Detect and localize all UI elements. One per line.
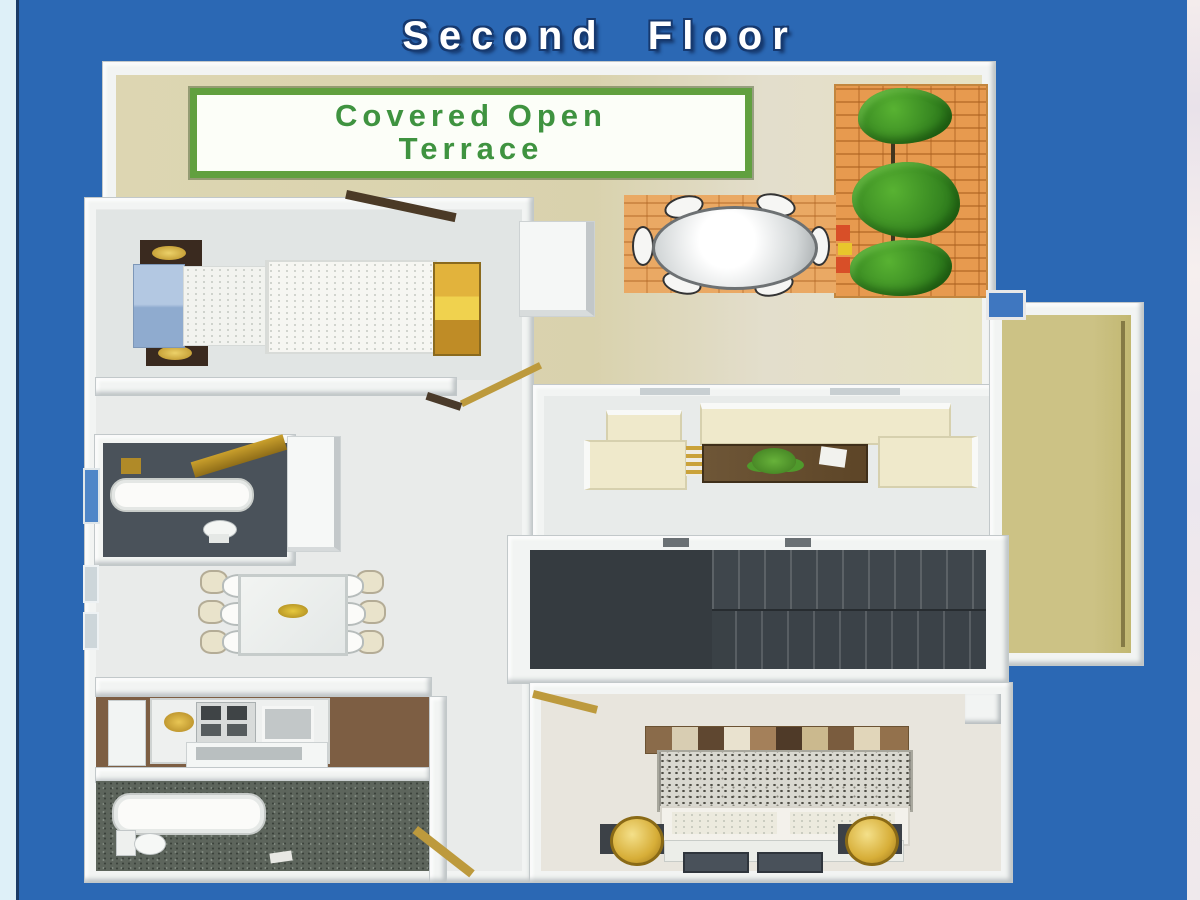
sign-line-1: Covered Open bbox=[335, 100, 607, 133]
lamp-icon bbox=[845, 816, 899, 866]
closet-cabinet bbox=[520, 222, 594, 316]
stairs-upper-flight bbox=[712, 550, 986, 610]
kitchen-north-wall bbox=[96, 678, 431, 696]
sign-line-2: Terrace bbox=[399, 133, 544, 166]
window bbox=[83, 468, 100, 524]
gold-pan bbox=[164, 712, 194, 732]
stairs-lower-flight bbox=[735, 610, 986, 670]
window bbox=[986, 290, 1026, 320]
tree-icon bbox=[850, 240, 952, 296]
footboard-slot bbox=[683, 852, 749, 873]
flight-divider bbox=[712, 609, 986, 611]
armchair bbox=[878, 436, 978, 488]
planter-red-block bbox=[836, 257, 850, 273]
corner-column bbox=[965, 694, 1001, 724]
bathtub bbox=[110, 478, 254, 512]
window bbox=[83, 612, 99, 650]
balcony bbox=[990, 303, 1143, 665]
table-centerpiece bbox=[278, 604, 308, 618]
window bbox=[83, 565, 99, 603]
tall-cabinet bbox=[288, 437, 340, 551]
bed-2-blanket bbox=[657, 750, 913, 812]
bathroom-2-divider-wall bbox=[96, 768, 431, 782]
outdoor-chair bbox=[632, 226, 654, 266]
vanity-corner bbox=[121, 458, 141, 474]
sink bbox=[262, 706, 314, 742]
burner-icon bbox=[227, 706, 247, 720]
planter-red-block bbox=[836, 225, 850, 241]
stairwell-pit bbox=[530, 550, 986, 669]
toilet-tank bbox=[116, 830, 136, 856]
bedroom-1-south-wall bbox=[96, 378, 456, 395]
lamp-icon bbox=[610, 816, 664, 866]
wall-slit bbox=[663, 538, 689, 547]
toilet bbox=[134, 833, 166, 855]
toilet-tank bbox=[209, 534, 229, 543]
burner-icon bbox=[201, 706, 221, 720]
counter-inset bbox=[196, 747, 302, 760]
bed-1-bench-wardrobe bbox=[433, 262, 481, 356]
bed-1-pillows bbox=[183, 266, 267, 346]
window-slit bbox=[830, 388, 900, 395]
floor-plan: Covered Open Terrace bbox=[0, 0, 1200, 900]
pillow bbox=[672, 812, 777, 834]
bed-1-headboard bbox=[133, 264, 185, 348]
footboard-slot bbox=[757, 852, 823, 873]
outdoor-table bbox=[652, 206, 818, 290]
loveseat bbox=[584, 440, 687, 490]
fridge-panel bbox=[108, 700, 146, 766]
screen: Second Floor Covered Open Terrace bbox=[0, 0, 1200, 900]
coffee-table-slats bbox=[686, 446, 702, 476]
burner-icon bbox=[201, 724, 221, 736]
tray bbox=[819, 446, 847, 467]
balcony-edge-line bbox=[1121, 321, 1125, 647]
stairwell bbox=[508, 536, 1008, 683]
stair-landing bbox=[530, 550, 712, 669]
terrace-sign: Covered Open Terrace bbox=[190, 88, 752, 178]
planter-gold-block bbox=[838, 243, 852, 255]
bathtub bbox=[112, 793, 266, 835]
window-slit bbox=[640, 388, 710, 395]
lamp-icon bbox=[158, 346, 192, 360]
lamp-icon bbox=[152, 246, 186, 260]
plant-icon bbox=[752, 448, 796, 474]
burner-icon bbox=[227, 724, 247, 736]
bed-1-mattress bbox=[265, 260, 437, 354]
wall-slit bbox=[785, 538, 811, 547]
balcony-floor bbox=[1002, 315, 1131, 653]
